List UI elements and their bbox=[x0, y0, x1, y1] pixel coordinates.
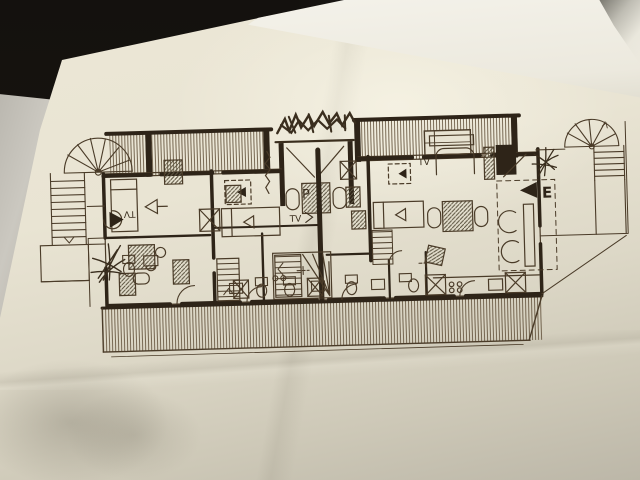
wardrobe-dashed bbox=[388, 163, 411, 184]
label-tv-left: TV bbox=[123, 208, 137, 218]
label-tv-center: TV bbox=[289, 214, 303, 224]
toilet-icon bbox=[399, 273, 419, 292]
label-entrance: E bbox=[542, 184, 553, 202]
terrace-hatch bbox=[102, 296, 543, 357]
bed bbox=[221, 207, 280, 237]
dining-table bbox=[286, 182, 347, 214]
cushion bbox=[351, 211, 365, 229]
closet bbox=[484, 144, 527, 179]
column-xbox bbox=[199, 209, 220, 232]
cushion bbox=[173, 260, 190, 284]
double-bed bbox=[424, 130, 471, 155]
armchair bbox=[498, 204, 535, 267]
plant-scribble-top bbox=[275, 111, 356, 142]
cushion bbox=[226, 185, 241, 202]
label-p: P bbox=[302, 187, 310, 202]
entrance-area: E bbox=[520, 182, 553, 203]
coffee-table-chairs bbox=[427, 200, 488, 232]
sink-icon bbox=[371, 279, 384, 289]
cushion bbox=[425, 245, 445, 265]
entrance-arrow-icon bbox=[520, 182, 537, 198]
cushion bbox=[346, 187, 361, 207]
photo-of-floor-plan: E TV TV TV P bbox=[0, 0, 640, 480]
label-tv-right: TV bbox=[417, 158, 431, 168]
floor-plan-drawing: E TV TV TV P bbox=[0, 0, 640, 480]
bed bbox=[373, 201, 424, 228]
cushion bbox=[164, 160, 183, 184]
right-spiral-stair bbox=[535, 118, 626, 235]
